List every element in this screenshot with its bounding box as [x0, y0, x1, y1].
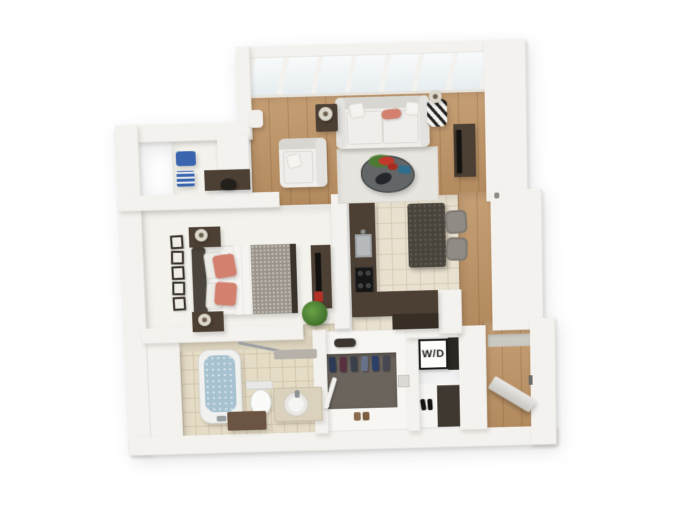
television	[456, 130, 462, 173]
wall-frame	[172, 297, 186, 311]
desk-chair	[220, 178, 236, 190]
toilet-tank	[245, 380, 273, 389]
wall-frame	[171, 251, 184, 265]
shoes	[363, 412, 370, 421]
bar-stool	[444, 209, 467, 234]
bathroom-shelf	[274, 349, 317, 360]
bedroom-kitchen-wall	[331, 194, 351, 329]
burner	[366, 271, 371, 276]
white-throw-pillow	[348, 102, 366, 119]
window-pane	[383, 54, 420, 92]
shoe-shelf-unit	[437, 385, 460, 427]
burner	[366, 283, 371, 288]
accent-side-stool	[249, 110, 264, 128]
washer-dryer-unit: W/D	[418, 339, 448, 370]
laundry-entry-wall	[458, 325, 487, 430]
potted-plant	[302, 301, 328, 327]
hanging-clothes	[383, 355, 390, 370]
hanging-clothes	[328, 357, 336, 373]
kitchen-island	[407, 203, 446, 268]
kitchen-wall-stub	[438, 289, 462, 334]
coral-pillow	[214, 282, 237, 307]
coral-pillow	[212, 253, 237, 279]
right-wall-door-handle	[494, 193, 499, 199]
window-pane	[282, 57, 318, 95]
wall-frame	[172, 282, 185, 296]
laundry-dark-recess	[448, 337, 459, 370]
wall-frame	[170, 235, 184, 249]
kitchen-faucet	[361, 229, 366, 234]
door-hinge-frame	[529, 375, 533, 385]
tub-faucet	[217, 416, 227, 422]
hanging-clothes	[371, 356, 379, 372]
duffel-bag	[334, 338, 356, 347]
right-wall-middle	[490, 188, 543, 330]
bathtub-water	[203, 355, 236, 413]
bathroom-cabinet	[227, 411, 267, 431]
right-wall-upper	[484, 39, 528, 202]
window-pane	[451, 52, 488, 90]
hanging-clothes	[340, 357, 347, 372]
bathroom-left-wall	[147, 333, 184, 440]
blue-books-stack	[176, 171, 194, 187]
kitchen-double-sink	[355, 234, 372, 258]
window-pane	[349, 55, 385, 93]
white-throw-pillow	[404, 101, 419, 116]
wall-frame	[171, 266, 185, 280]
gray-blanket	[250, 244, 292, 314]
burner	[358, 283, 363, 288]
floorplan-render: W/D	[0, 0, 680, 510]
coffee-table-book	[398, 165, 411, 174]
hanging-clothes	[350, 356, 358, 372]
window-pane	[315, 56, 351, 94]
blue-storage-bin	[176, 151, 196, 166]
bar-stool	[446, 237, 468, 261]
window-wall	[246, 51, 523, 98]
storage-box	[398, 375, 410, 388]
right-wall-entry	[530, 318, 557, 446]
shoes	[427, 399, 433, 411]
window-panes	[246, 51, 523, 95]
striped-accent-stool	[427, 99, 447, 127]
apartment-3d-floorplan: W/D	[0, 0, 680, 502]
window-pane	[248, 58, 284, 96]
shoes	[354, 412, 361, 421]
entry-floor-mat	[488, 333, 530, 347]
nook-wall-stub	[217, 134, 250, 170]
vanity-faucet	[295, 390, 300, 398]
armchair-arm	[315, 138, 327, 187]
washer-dryer-label: W/D	[420, 341, 446, 368]
peninsula-counter	[392, 313, 438, 330]
hanging-clothes	[361, 356, 368, 371]
window-pane	[417, 53, 454, 91]
